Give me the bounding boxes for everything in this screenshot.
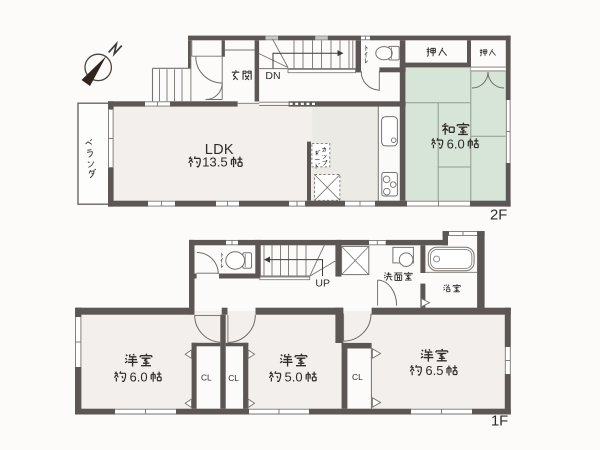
svg-text:2F: 2F — [490, 208, 507, 224]
svg-text:1F: 1F — [491, 413, 508, 429]
svg-text:CL: CL — [352, 372, 363, 382]
svg-text:5.0: 5.0 — [285, 370, 303, 385]
svg-text:UP: UP — [315, 277, 330, 289]
svg-text:6.0: 6.0 — [130, 370, 148, 385]
svg-text:DN: DN — [265, 70, 280, 82]
svg-text:6.5: 6.5 — [425, 363, 443, 378]
svg-text:CL: CL — [228, 373, 239, 383]
svg-text:CL: CL — [201, 373, 212, 383]
svg-text:6.0: 6.0 — [447, 136, 465, 151]
svg-text:13.5: 13.5 — [202, 155, 228, 170]
